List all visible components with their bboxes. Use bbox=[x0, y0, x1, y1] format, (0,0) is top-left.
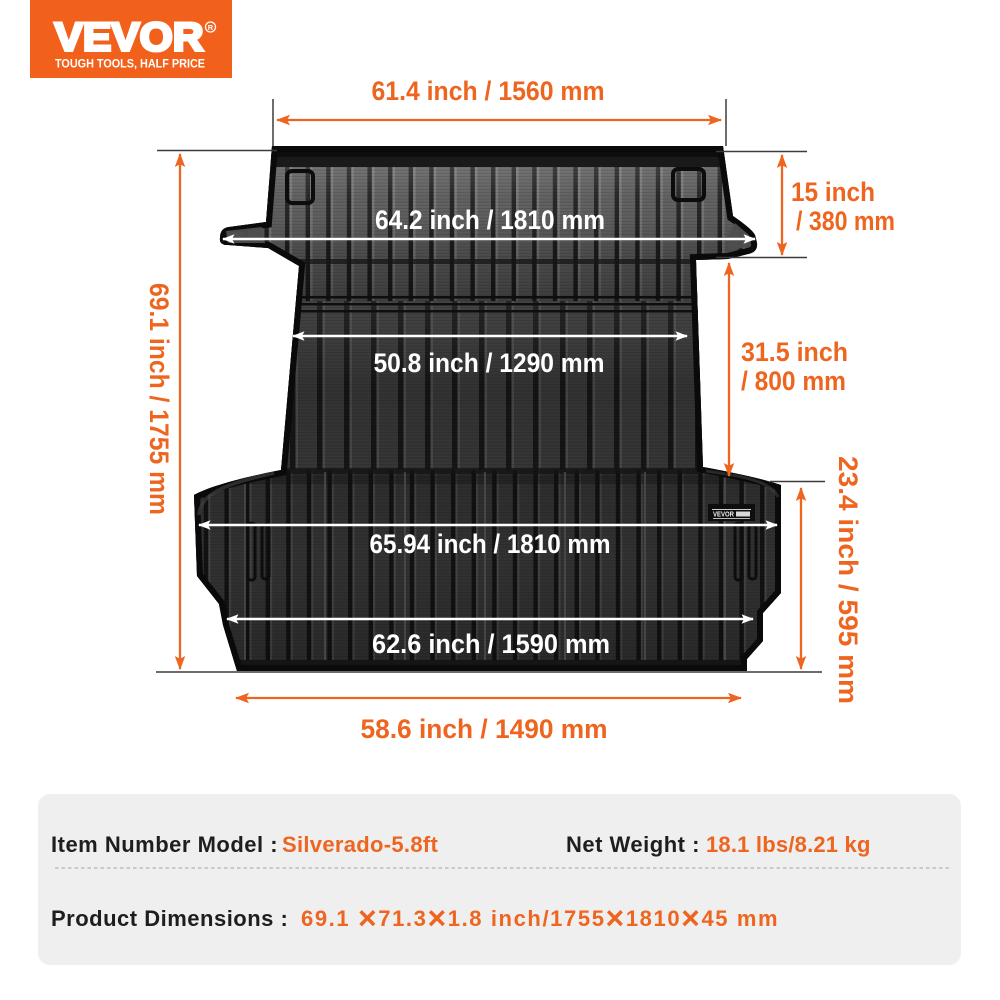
svg-text:VEVOR: VEVOR bbox=[55, 16, 204, 60]
svg-text:64.2 inch / 1810 mm: 64.2 inch / 1810 mm bbox=[375, 205, 605, 235]
svg-text:65.94 inch / 1810 mm: 65.94 inch / 1810 mm bbox=[370, 529, 611, 559]
svg-text:50.8 inch / 1290 mm: 50.8 inch / 1290 mm bbox=[374, 348, 605, 378]
svg-text:Silverado-5.8ft: Silverado-5.8ft bbox=[282, 832, 438, 857]
svg-text:/ 380 mm: / 380 mm bbox=[796, 206, 895, 236]
svg-text:58.6 inch / 1490 mm: 58.6 inch / 1490 mm bbox=[361, 714, 608, 744]
svg-text:Net Weight :: Net Weight : bbox=[566, 832, 700, 857]
svg-text:18.1 lbs/8.21 kg: 18.1 lbs/8.21 kg bbox=[706, 832, 871, 857]
svg-text:62.6 inch / 1590 mm: 62.6 inch / 1590 mm bbox=[372, 629, 610, 659]
svg-text:69.1 inch / 1755 mm: 69.1 inch / 1755 mm bbox=[144, 283, 174, 515]
svg-text:15 inch: 15 inch bbox=[791, 177, 875, 207]
svg-text:VEVOR: VEVOR bbox=[713, 512, 734, 519]
svg-text:Product Dimensions :: Product Dimensions : bbox=[51, 906, 288, 931]
svg-text:TOUGH TOOLS, HALF PRICE: TOUGH TOOLS, HALF PRICE bbox=[55, 59, 205, 71]
svg-text:Item Number Model :: Item Number Model : bbox=[51, 832, 278, 857]
svg-text:31.5 inch: 31.5 inch bbox=[741, 337, 848, 367]
svg-text:23.4 inch / 595 mm: 23.4 inch / 595 mm bbox=[833, 456, 863, 704]
svg-text:R: R bbox=[208, 23, 214, 32]
svg-text:61.4 inch / 1560 mm: 61.4 inch / 1560 mm bbox=[372, 76, 605, 106]
svg-text:/ 800 mm: / 800 mm bbox=[741, 366, 846, 396]
svg-text:69.1 ×71.3×1.8 inch/1755×1810×: 69.1 ×71.3×1.8 inch/1755×1810×45 mm bbox=[301, 900, 779, 936]
